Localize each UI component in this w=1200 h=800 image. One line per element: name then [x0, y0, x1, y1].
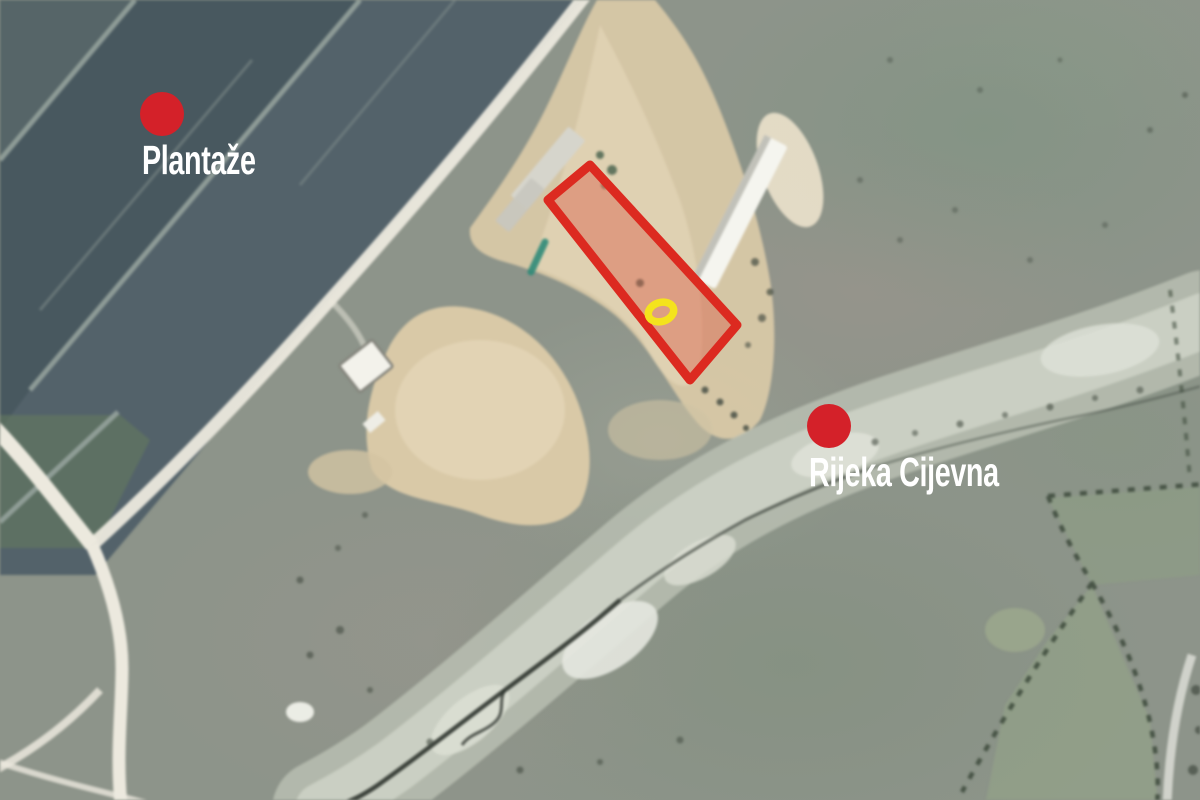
red-dot-icon	[140, 92, 184, 136]
red-dot-icon	[807, 404, 851, 448]
marker-label: Rijeka Cijevna	[809, 450, 999, 495]
marker-label: Plantaže	[142, 138, 256, 183]
highlighted-parcel-outline	[548, 165, 737, 380]
satellite-map: Plantaže Rijeka Cijevna	[0, 0, 1200, 800]
